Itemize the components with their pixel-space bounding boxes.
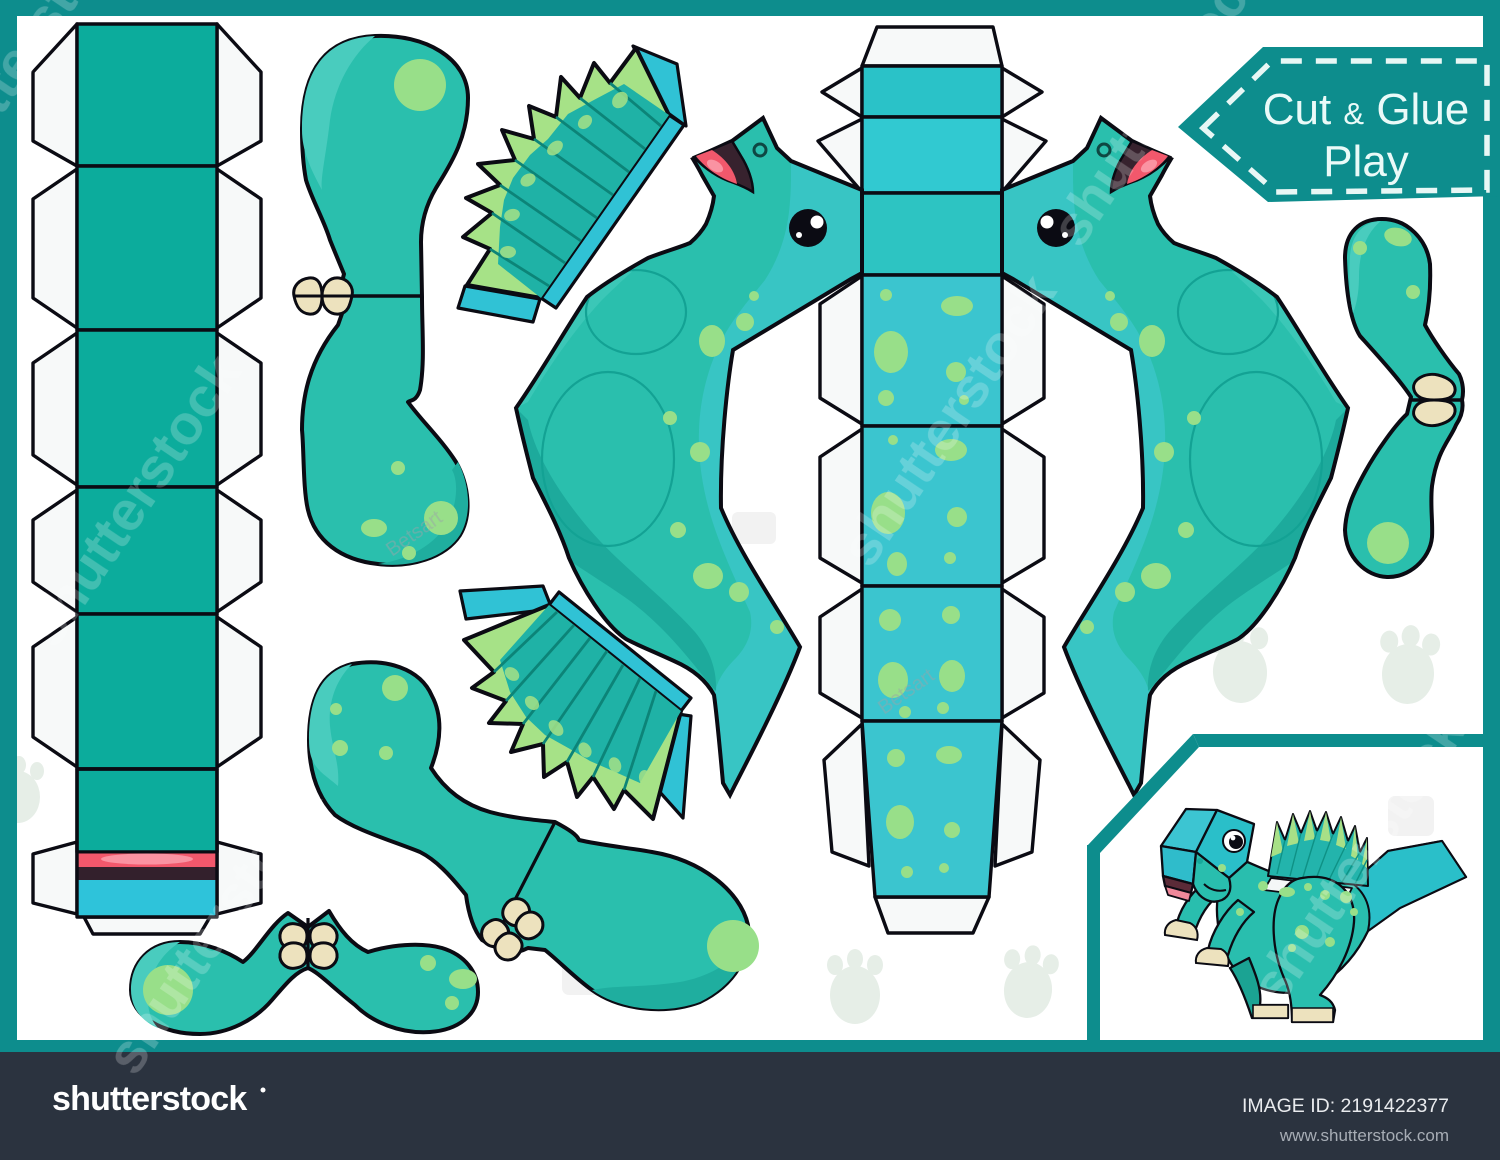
svg-text:shutterstock: shutterstock: [52, 1080, 247, 1118]
svg-text:IMAGE ID: 2191422377: IMAGE ID: 2191422377: [1242, 1095, 1449, 1117]
svg-text:Cut & Glue: Cut & Glue: [1263, 85, 1470, 134]
svg-text:www.shutterstock.com: www.shutterstock.com: [1279, 1126, 1449, 1145]
svg-text:Play: Play: [1323, 137, 1409, 186]
